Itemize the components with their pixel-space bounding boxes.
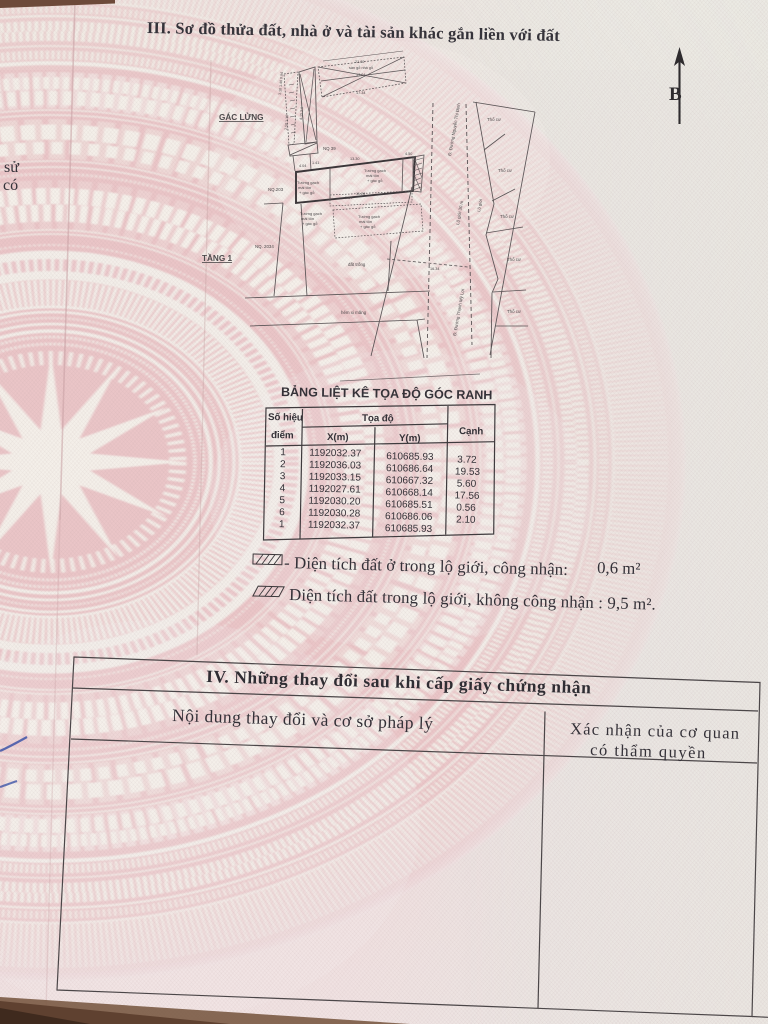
svg-text:IV. Những thay đổi sau khi cấp: IV. Những thay đổi sau khi cấp giấy chứn… bbox=[206, 666, 592, 697]
svg-text:có thẩm quyền: có thẩm quyền bbox=[590, 740, 707, 762]
svg-text:Nội dung thay đổi và cơ sở phá: Nội dung thay đổi và cơ sở pháp lý bbox=[172, 705, 434, 733]
